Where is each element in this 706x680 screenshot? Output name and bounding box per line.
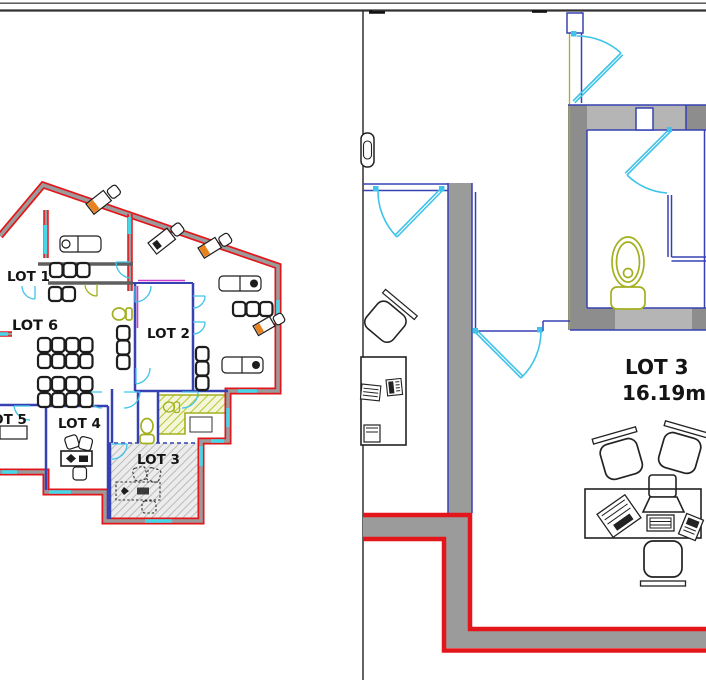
detail-labels: LOT 3 16.19m [622,355,706,405]
detail-walls [363,12,706,513]
detail-lot-label: LOT 3 [625,355,689,379]
overview-labels: LOT 1 LOT 2 LOT 3 LOT 4 LOT 5 LOT 6 [0,269,190,468]
floorplan-page: LOT 1 LOT 2 LOT 3 LOT 4 LOT 5 LOT 6 [0,0,706,680]
wc-green-zone [158,395,228,434]
keyboard-icon [360,384,380,401]
bed-icon [60,236,101,252]
lot4-desk-group [61,434,93,480]
desk-icon [198,231,233,260]
lot2-label: LOT 2 [147,326,190,342]
lot4-label: LOT 4 [58,416,101,432]
toilet-icon-detail [611,237,645,309]
toilet-icon [140,419,154,444]
door-jamb [636,108,653,130]
page-top-border [0,3,706,10]
door-jamb [567,13,583,33]
lot1-label: LOT 1 [7,269,50,285]
bed-icon [219,276,261,291]
phone-icon [679,513,704,540]
detail-plan-panel: LOT 3 16.19m [359,10,706,651]
toilet-icon [113,308,133,320]
lot6-label: LOT 6 [12,318,58,334]
phone-icon [386,378,403,395]
detail-area-label: 16.19m [622,381,706,405]
green-door-arc [85,284,97,296]
monitor-icon [364,425,380,442]
left-room-furniture [359,289,417,445]
laptop-icon [597,495,641,537]
lot3-label: LOT 3 [137,452,180,468]
door-arc [22,286,35,299]
keyboard-icon [647,515,674,531]
lot3-desk-group [585,421,706,586]
lot5-label: LOT 5 [0,412,27,428]
monitor-icon [643,475,684,512]
bed-icon [222,357,263,373]
partial-chair-icon [361,133,374,167]
overview-plan-panel: LOT 1 LOT 2 LOT 3 LOT 4 LOT 5 LOT 6 [0,182,286,521]
floorplan-canvas: LOT 1 LOT 2 LOT 3 LOT 4 LOT 5 LOT 6 [0,0,706,680]
